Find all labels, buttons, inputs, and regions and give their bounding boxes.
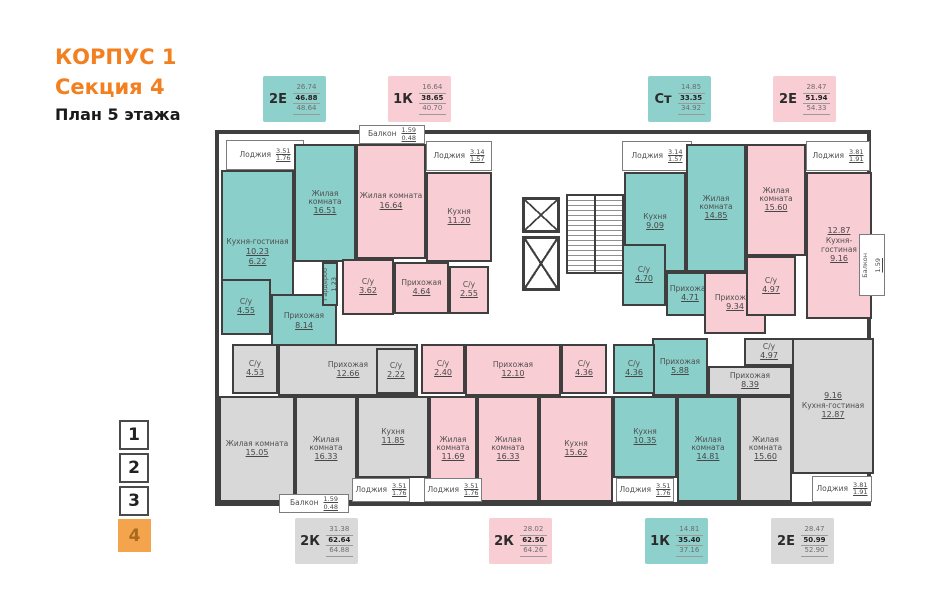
room-living: Жилая комната 16.64 [356, 144, 426, 259]
badge-area: 54.33 [803, 104, 830, 115]
floor-button-3[interactable]: 3 [119, 486, 149, 516]
badge-area: 33.35 [678, 94, 705, 105]
elevator-shaft [522, 197, 560, 233]
room-kitchen: Кухня 11.20 [426, 172, 492, 262]
apartment-badge-2k[interactable]: 2К 31.3862.6464.88 [295, 518, 358, 564]
room-loggia: Лоджия 3.511.76 [226, 140, 304, 170]
badge-area: 62.64 [326, 536, 353, 547]
room-kitchen: Кухня 10.35 [613, 396, 677, 478]
badge-area: 51.94 [803, 94, 830, 105]
room-bathroom: С/у 4.97 [746, 256, 796, 316]
room-bathroom: С/у 2.55 [449, 266, 489, 314]
room-living: Жилая комната 16.33 [295, 396, 357, 502]
badge-area: 46.88 [293, 94, 320, 105]
badge-area: 28.02 [520, 525, 547, 536]
apartment-badge-1k[interactable]: 1К 14.8135.4037.16 [645, 518, 708, 564]
room-bathroom: С/у 4.70 [622, 244, 666, 306]
room-bathroom: С/у 2.40 [421, 344, 465, 394]
badge-type: 2К [300, 534, 320, 549]
room-living: Жилая комната 16.51 [294, 144, 356, 262]
badge-type: 2Е [779, 92, 797, 107]
badge-area: 48.64 [293, 104, 320, 115]
apartment-badge-2e[interactable]: 2Е 28.4750.9952.90 [771, 518, 834, 564]
badge-type: 2Е [777, 534, 795, 549]
room-living: Жилая комната 15.60 [739, 396, 792, 502]
room-kitchen: Кухня 15.62 [539, 396, 613, 502]
room-loggia: Лоджия 3.511.76 [616, 478, 674, 502]
room-kitchen: Кухня 11.85 [357, 396, 429, 478]
apartment-badge-2e[interactable]: 2Е 28.4751.9454.33 [773, 76, 836, 122]
badge-type: Ст [654, 92, 671, 107]
room-living: Жилая комната 15.60 [746, 144, 806, 256]
floor-button-1[interactable]: 1 [119, 420, 149, 450]
badge-area: 64.26 [520, 546, 547, 557]
badge-area: 26.74 [293, 83, 320, 94]
room-bathroom: С/у 4.36 [561, 344, 607, 394]
room-loggia: Лоджия 3.811.91 [812, 476, 872, 502]
badge-area: 35.40 [676, 536, 703, 547]
badge-area: 28.47 [801, 525, 828, 536]
badge-area: 34.92 [678, 104, 705, 115]
room-balcony: Балкон 1.590.48 [359, 125, 425, 144]
apartment-badge-2e[interactable]: 2Е 26.7446.8848.64 [263, 76, 326, 122]
room-bathroom: С/у 4.53 [232, 344, 278, 394]
room-living: Жилая комната 15.05 [219, 396, 295, 502]
badge-area: 38.65 [419, 94, 446, 105]
page-title: КОРПУС 1 Секция 4 План 5 этажа [55, 42, 181, 127]
badge-area: 16.64 [419, 83, 446, 94]
badge-area: 64.88 [326, 546, 353, 557]
room-hallway: Прихожая 12.10 [465, 344, 561, 396]
room-hallway: Прихожая 5.88 [652, 338, 708, 396]
room-living: Жилая комната 14.81 [677, 396, 739, 502]
room-loggia: Лоджия 3.141.57 [426, 141, 492, 171]
badge-type: 1К [393, 92, 413, 107]
floor-button-4-active[interactable]: 4 [118, 519, 151, 552]
badge-type: 2К [494, 534, 514, 549]
room-living: Жилая комната 14.85 [686, 144, 746, 272]
badge-area: 37.16 [676, 546, 703, 557]
badge-area: 62.50 [520, 536, 547, 547]
badge-area: 40.70 [419, 104, 446, 115]
badge-type: 2Е [269, 92, 287, 107]
apartment-badge-1k[interactable]: 1К 16.6438.6540.70 [388, 76, 451, 122]
room-balcony: Балкон 1.59 [859, 234, 885, 296]
apartment-badge-2k[interactable]: 2К 28.0262.5064.26 [489, 518, 552, 564]
room-bathroom: С/у 2.22 [376, 348, 416, 394]
room-kitchen-living: 9.16 Кухня-гостиная 12.87 [792, 338, 874, 474]
room-wardrobe: Гардероб 1.23 [322, 262, 338, 306]
room-loggia: Лоджия 3.141.57 [622, 141, 692, 171]
room-loggia: Лоджия 3.511.76 [352, 478, 410, 502]
room-hallway: Прихожая 8.39 [708, 366, 792, 396]
stairwell [566, 194, 624, 274]
room-balcony: Балкон 1.590.48 [279, 494, 349, 513]
badge-type: 1К [650, 534, 670, 549]
badge-area: 28.47 [803, 83, 830, 94]
badge-area: 14.85 [678, 83, 705, 94]
badge-area: 50.99 [801, 536, 828, 547]
floor-plan: Лоджия 3.511.76 Кухня-гостиная 10.23 6.2… [215, 130, 871, 506]
room-bathroom: С/у 4.55 [221, 279, 271, 335]
apartment-badge-st[interactable]: Ст 14.8533.3534.92 [648, 76, 711, 122]
building-title: КОРПУС 1 [55, 42, 181, 72]
room-hallway: Прихожая 4.64 [394, 262, 449, 314]
room-bathroom: С/у 4.97 [744, 338, 794, 366]
floor-button-2[interactable]: 2 [119, 453, 149, 483]
section-title: Секция 4 [55, 72, 181, 102]
room-loggia: Лоджия 3.511.76 [424, 478, 482, 502]
elevator-shaft [522, 236, 560, 291]
badge-area: 14.81 [676, 525, 703, 536]
room-bathroom: С/у 3.62 [342, 259, 394, 315]
room-loggia: Лоджия 3.811.91 [806, 141, 870, 171]
room-living: Жилая комната 16.33 [477, 396, 539, 502]
badge-area: 52.90 [801, 546, 828, 557]
floor-plan-title: План 5 этажа [55, 103, 181, 127]
badge-area: 31.38 [326, 525, 353, 536]
room-bathroom: С/у 4.36 [613, 344, 655, 394]
